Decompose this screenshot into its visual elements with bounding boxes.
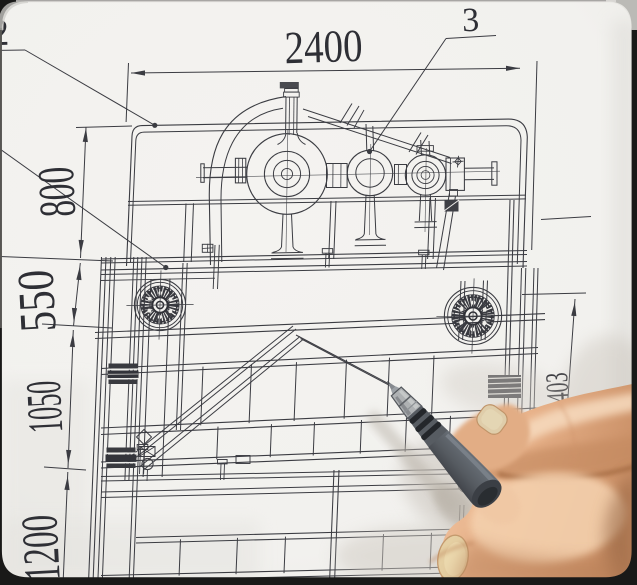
svg-text:1200: 1200 — [11, 513, 71, 582]
svg-text:1050: 1050 — [15, 379, 74, 434]
svg-text:2400: 2400 — [284, 20, 364, 73]
svg-text:800: 800 — [28, 165, 88, 218]
svg-text:3: 3 — [462, 2, 480, 40]
svg-text:550: 550 — [7, 268, 67, 333]
